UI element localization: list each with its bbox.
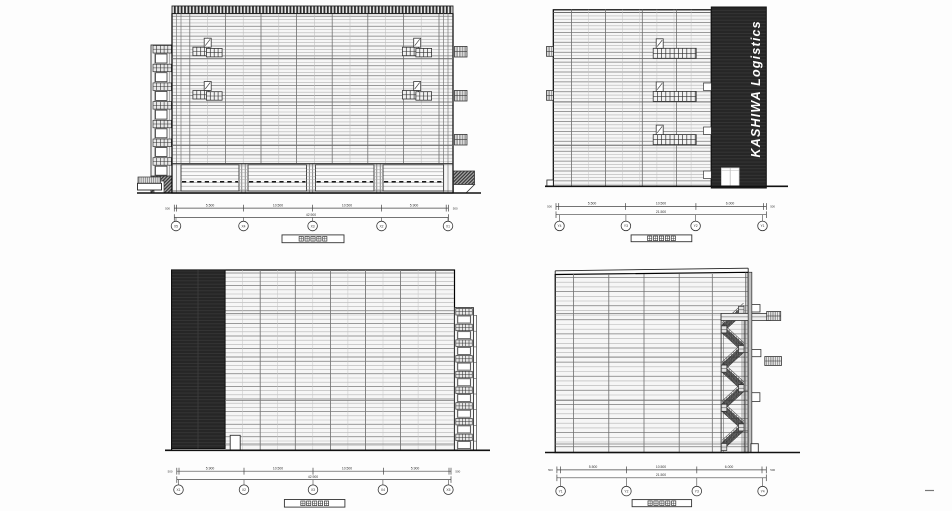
svg-text:5.500: 5.500 [589,465,598,469]
svg-text:Y1: Y1 [559,489,563,493]
svg-text:5.900: 5.900 [206,466,215,470]
svg-text:500: 500 [165,206,170,210]
svg-text:10.500: 10.500 [656,465,666,469]
svg-text:500: 500 [548,468,553,472]
svg-text:KASHIWA Logistics: KASHIWA Logistics [749,20,763,157]
svg-text:X5: X5 [174,224,178,228]
svg-text:X3: X3 [311,488,315,492]
svg-text:500: 500 [455,469,460,473]
svg-text:X4: X4 [241,224,245,228]
svg-text:500: 500 [168,469,173,473]
svg-text:X2: X2 [379,224,383,228]
svg-text:X2: X2 [242,488,246,492]
svg-text:10.500: 10.500 [342,466,352,470]
svg-text:42.900: 42.900 [306,213,316,217]
svg-text:42.900: 42.900 [308,475,318,479]
svg-text:500: 500 [770,468,775,472]
svg-text:X5: X5 [446,488,450,492]
svg-text:Y4: Y4 [761,489,765,493]
svg-text:10.500: 10.500 [342,203,352,207]
svg-text:500: 500 [453,206,458,210]
svg-text:5.500: 5.500 [206,203,215,207]
svg-text:10.500: 10.500 [656,202,666,206]
svg-text:21.500: 21.500 [656,210,666,214]
svg-text:5.500: 5.500 [588,202,597,206]
svg-text:5.900: 5.900 [410,203,419,207]
svg-text:Y3: Y3 [695,489,699,493]
svg-text:X4: X4 [381,488,385,492]
svg-text:X1: X1 [446,224,450,228]
svg-text:Y1: Y1 [760,224,764,228]
svg-text:5.900: 5.900 [411,466,420,470]
svg-text:X1: X1 [176,488,180,492]
svg-text:Y2: Y2 [624,489,628,493]
svg-text:6.000: 6.000 [726,202,735,206]
svg-text:X3: X3 [311,224,315,228]
svg-text:Y3: Y3 [624,224,628,228]
svg-text:500: 500 [770,205,775,209]
svg-text:500: 500 [547,205,552,209]
svg-text:Y2: Y2 [694,224,698,228]
svg-text:6.000: 6.000 [725,465,734,469]
svg-text:21.500: 21.500 [656,473,666,477]
svg-text:Y4: Y4 [557,224,561,228]
svg-text:10.500: 10.500 [273,466,283,470]
svg-text:10.500: 10.500 [273,203,283,207]
